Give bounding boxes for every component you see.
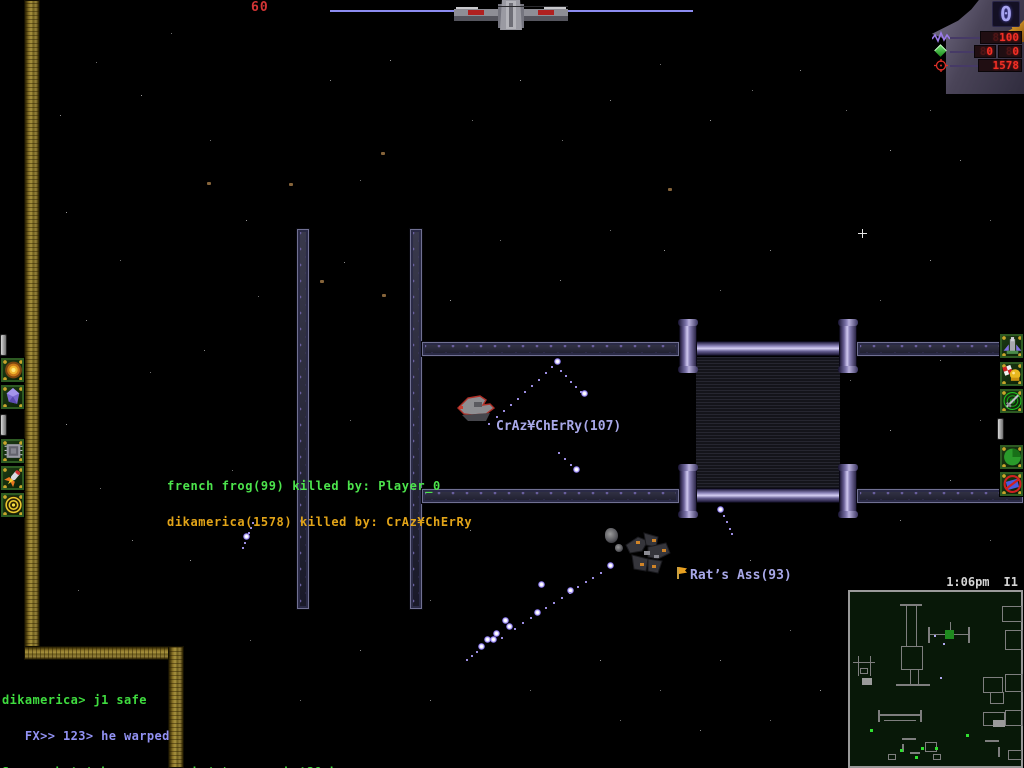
bullet-trail-dot xyxy=(531,385,533,387)
bullet-trail-dot xyxy=(476,651,478,653)
bullet-trail-dot xyxy=(585,581,587,583)
item-pin xyxy=(0,414,7,436)
bullet-trail-dot xyxy=(510,404,512,406)
item-tile-rocket[interactable] xyxy=(0,465,25,491)
crystal-icon xyxy=(3,387,24,407)
flag-icon xyxy=(677,567,679,579)
sun-burst-icon xyxy=(3,360,24,380)
bullet-trail-dot xyxy=(553,602,555,604)
radar-wall xyxy=(998,747,1000,757)
bullet-trail-dot xyxy=(580,391,582,393)
bullet-trail-dot xyxy=(466,659,468,661)
bullet-trail-dot xyxy=(514,628,516,630)
wire xyxy=(950,65,980,67)
bullet-trail-dot xyxy=(564,458,566,460)
chat-message: dikamerica> j1 safe xyxy=(2,694,353,706)
led-ghost: 8 xyxy=(980,45,987,58)
bullet-trail-dot xyxy=(723,515,725,517)
radar-wall xyxy=(900,604,922,606)
crosshair-icon xyxy=(932,59,950,72)
debris xyxy=(207,182,211,185)
led-readout: 1578 xyxy=(978,59,1022,72)
big-counter: 0 xyxy=(992,1,1020,27)
waveform-icon xyxy=(932,31,950,44)
radar-wall xyxy=(920,710,922,722)
radar-wall xyxy=(878,710,880,722)
radar-wall xyxy=(933,754,941,760)
radar-wall xyxy=(853,662,875,663)
radar-player-dot xyxy=(966,734,969,737)
bullet-trail-dot xyxy=(545,372,547,374)
status-row-bounty: 1578 xyxy=(930,59,1024,72)
bullet-trail-dot xyxy=(592,577,594,579)
status-panel: 0 8100 80 80 xyxy=(930,0,1024,94)
bullet xyxy=(478,643,485,650)
radar-bullet-dot xyxy=(934,635,936,637)
radar-wall xyxy=(910,752,920,754)
radar-wall xyxy=(968,627,970,643)
bullet xyxy=(554,358,561,365)
radar-wall xyxy=(902,738,916,740)
radar-player-dot xyxy=(900,749,903,752)
bullet-trail-dot xyxy=(530,617,532,619)
debris xyxy=(320,280,324,283)
game-window: 60 0 8100 xyxy=(0,0,1024,768)
chat-log: dikamerica> j1 safe FX>> 123> he warped … xyxy=(2,670,353,768)
item-tile-chip[interactable] xyxy=(0,438,25,464)
no-entry-icon xyxy=(1002,474,1023,494)
radar-wall xyxy=(916,606,917,646)
player-ship-lower xyxy=(618,531,676,577)
chat-message: FX>> 123> he warped xyxy=(2,730,353,742)
bullet-trail-dot xyxy=(565,375,567,377)
debris xyxy=(382,294,386,297)
item-tile-crystal[interactable] xyxy=(0,384,25,410)
item-tile-pie[interactable] xyxy=(999,444,1024,470)
radar-clock: 1:06pmI1 xyxy=(844,575,1018,589)
kill-message: french frog(99) killed by: Player_0 xyxy=(167,480,472,492)
bullet-trail-dot xyxy=(503,410,505,412)
bullet xyxy=(717,506,724,513)
bullet-trail-dot xyxy=(471,655,473,657)
bullet-trail-dot xyxy=(731,533,733,535)
bullet-trail-dot xyxy=(538,379,540,381)
bullet-trail-dot xyxy=(570,381,572,383)
bullet-trail-dot xyxy=(569,592,571,594)
led-readout: 80 xyxy=(974,45,996,58)
bullet-trail-dot xyxy=(551,366,553,368)
radar-wall xyxy=(910,670,911,684)
player-ship-center xyxy=(456,390,496,424)
bullet-trail-dot xyxy=(600,572,602,574)
bullet xyxy=(538,581,545,588)
item-tile-bell-flag[interactable] xyxy=(999,361,1024,387)
bullet xyxy=(490,636,497,643)
rocket-icon xyxy=(3,468,24,488)
radar-wall xyxy=(862,678,872,685)
bullet-trail-dot xyxy=(729,528,731,530)
status-row-energy: 8100 xyxy=(930,31,1024,44)
led-ghost: 8 xyxy=(993,31,1000,44)
led-readout: 80 xyxy=(998,45,1022,58)
radar-wall xyxy=(860,668,868,674)
item-pin xyxy=(997,418,1004,440)
bullet-trail-dot xyxy=(522,622,524,624)
item-tile-turret-ship[interactable] xyxy=(999,333,1024,359)
pie-icon xyxy=(1002,447,1023,467)
led-value: 1578 xyxy=(993,59,1020,72)
kill-feed: french frog(99) killed by: Player_0 dika… xyxy=(167,456,472,552)
radar-wall xyxy=(870,656,871,676)
item-pin xyxy=(0,334,7,356)
turret-ship-icon xyxy=(1002,336,1023,356)
kill-message: dikamerica(1578) killed by: CrAz¥ChErRy xyxy=(167,516,472,528)
radar-wall xyxy=(928,627,930,643)
radar-wall xyxy=(918,670,919,684)
bullet-trail-dot xyxy=(501,637,503,639)
item-tile-no-entry[interactable] xyxy=(999,471,1024,497)
bullet-trail-dot xyxy=(577,586,579,588)
led-value: 0 xyxy=(986,45,993,58)
diamond-icon xyxy=(932,45,950,58)
bell-flag-icon xyxy=(1002,364,1023,384)
bullet-trail-dot xyxy=(545,607,547,609)
radar-player-dot xyxy=(915,756,918,759)
bullet-trail-dot xyxy=(561,597,563,599)
radar-wall xyxy=(884,720,916,721)
player-name-label: Rat’s Ass(93) xyxy=(690,568,792,583)
radar-bullet-dot xyxy=(940,677,942,679)
bullet-trail-dot xyxy=(524,391,526,393)
chip-icon xyxy=(3,441,24,461)
led-value: 100 xyxy=(999,31,1019,44)
bullet-trail-dot xyxy=(575,386,577,388)
debris xyxy=(381,152,385,155)
radar-wall xyxy=(990,692,1004,704)
item-tile-target[interactable] xyxy=(0,492,25,518)
clock-value: 1:06pm xyxy=(946,575,989,589)
bullet xyxy=(573,466,580,473)
bullet-trail-dot xyxy=(560,370,562,372)
radar-wall xyxy=(858,656,859,676)
radar-wall xyxy=(1005,710,1023,726)
bullet-trail-dot xyxy=(726,521,728,523)
radar-wall xyxy=(1005,674,1023,692)
radar-player-dot xyxy=(921,747,924,750)
radar-wall xyxy=(901,646,923,670)
radar-wall xyxy=(1002,606,1022,622)
radar-wall xyxy=(985,740,999,742)
radar-wall xyxy=(880,714,920,716)
bullet-trail-dot xyxy=(496,416,498,418)
wire xyxy=(950,37,980,39)
radar-wall xyxy=(906,606,907,646)
bullet-trail-dot xyxy=(517,398,519,400)
radar-wall xyxy=(1005,630,1023,650)
radar-wall xyxy=(950,622,951,630)
radar-bullet-dot xyxy=(943,643,945,645)
bullet-trail-dot xyxy=(558,452,560,454)
bullet xyxy=(534,609,541,616)
bullet-trail-dot xyxy=(570,464,572,466)
item-tile-sun-burst[interactable] xyxy=(0,357,25,383)
item-tile-sword-radar[interactable] xyxy=(999,388,1024,414)
radar-wall xyxy=(993,720,1005,727)
bullet xyxy=(581,390,588,397)
status-row-items: 80 80 xyxy=(930,45,1024,58)
debris xyxy=(668,188,672,191)
sword-radar-icon xyxy=(1002,391,1023,411)
radar-player-dot xyxy=(935,747,938,750)
radar-map[interactable] xyxy=(848,590,1023,768)
debris xyxy=(289,183,293,186)
bullet xyxy=(607,562,614,569)
player-name-label: CrAz¥ChErRy(107) xyxy=(496,419,621,434)
radar-base-square xyxy=(945,630,954,639)
radar-wall xyxy=(896,684,930,686)
led-readout: 8100 xyxy=(980,31,1022,44)
debris-rock xyxy=(605,528,618,543)
target-icon xyxy=(3,495,24,515)
led-ghost: 8 xyxy=(1006,45,1013,58)
radar-wall xyxy=(888,754,896,760)
led-value: 0 xyxy=(1012,45,1019,58)
radar-player-dot xyxy=(870,729,873,732)
zone-indicator: I1 xyxy=(1004,575,1018,589)
radar-wall xyxy=(983,677,1003,693)
radar-wall xyxy=(1008,750,1022,760)
bullet xyxy=(506,623,513,630)
wire xyxy=(950,51,974,53)
